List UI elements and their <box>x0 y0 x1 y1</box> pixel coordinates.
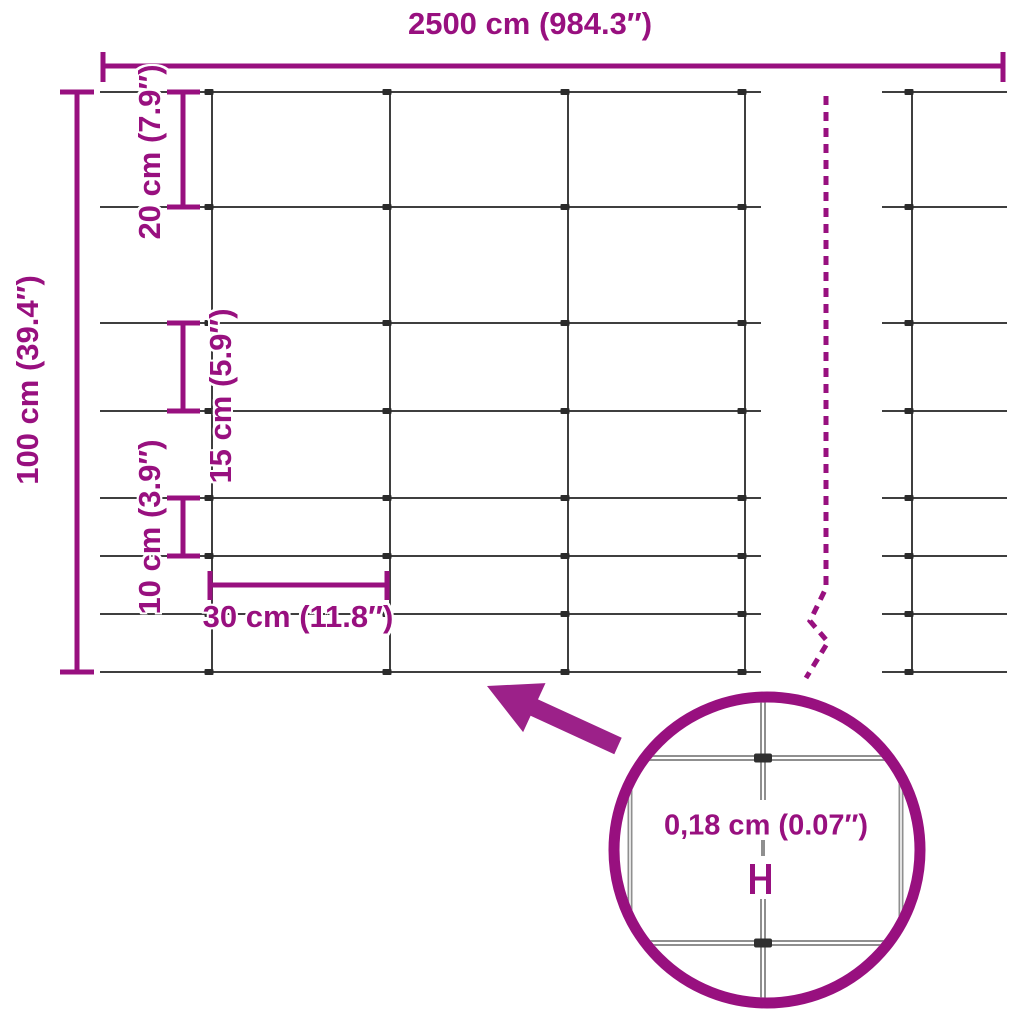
row-spacing-15cm-label: 15 cm (5.9″) <box>203 308 239 483</box>
wire-clamp-icon <box>561 89 570 95</box>
wire-clamp-icon <box>383 553 392 559</box>
column-spacing-30cm-label: 30 cm (11.8″) <box>203 599 394 635</box>
wire-clamp-icon <box>905 669 914 675</box>
wire-clamp-icon <box>738 611 747 617</box>
wire-clamp-icon <box>561 408 570 414</box>
wire-thickness-marker-icon <box>750 864 771 894</box>
wire-clamp-icon <box>738 204 747 210</box>
break-dashed-line <box>806 96 828 678</box>
wire-clamp-icon <box>205 669 214 675</box>
wire-clamp-icon <box>561 611 570 617</box>
bracket-15cm <box>167 321 200 414</box>
wire-clamp-icon <box>738 553 747 559</box>
wire-clamp-icon <box>561 320 570 326</box>
wire-clamp-icon <box>561 495 570 501</box>
wire-clamp-icon <box>561 204 570 210</box>
magnifier-ring <box>614 697 920 1003</box>
wire-clamp-icon <box>383 89 392 95</box>
bracket-10cm <box>167 496 200 559</box>
magnifier-arrow-icon <box>487 683 622 754</box>
wire-clamp-icon <box>905 89 914 95</box>
magnifier-circle <box>608 697 926 1005</box>
wire-clamp-icon <box>205 89 214 95</box>
wire-clamp-icon <box>905 495 914 501</box>
wire-clamp-icon <box>754 754 772 763</box>
wire-clamp-icon <box>383 495 392 501</box>
wire-clamp-icon <box>205 553 214 559</box>
wire-clamp-icon <box>738 669 747 675</box>
wire-clamp-icon <box>561 553 570 559</box>
width-dimension-line <box>101 52 1006 82</box>
wire-clamp-icon <box>905 553 914 559</box>
wire-clamp-icon <box>905 611 914 617</box>
wire-clamp-icon <box>383 320 392 326</box>
bracket-20cm <box>167 90 200 210</box>
wire-clamp-icon <box>383 204 392 210</box>
wire-clamp-icon <box>754 939 772 948</box>
bracket-30cm <box>208 571 390 600</box>
wire-clamp-icon <box>905 320 914 326</box>
wire-clamp-icon <box>738 89 747 95</box>
wire-thickness-label: 0,18 cm (0.07″) <box>664 810 868 843</box>
mesh-grid-right <box>882 89 1007 675</box>
wire-clamp-icon <box>905 204 914 210</box>
total-width-label: 2500 cm (984.3″) <box>408 6 652 42</box>
row-spacing-20cm-label: 20 cm (7.9″) <box>132 64 168 239</box>
wire-clamp-icon <box>738 408 747 414</box>
row-spacing-10cm-label: 10 cm (3.9″) <box>132 439 168 614</box>
wire-clamp-icon <box>905 408 914 414</box>
height-dimension-line <box>60 90 94 675</box>
wire-clamp-icon <box>738 495 747 501</box>
wire-clamp-icon <box>561 669 570 675</box>
wire-clamp-icon <box>383 669 392 675</box>
wire-clamp-icon <box>383 408 392 414</box>
total-height-label: 100 cm (39.4″) <box>10 275 46 485</box>
wire-clamp-icon <box>205 495 214 501</box>
wire-clamp-icon <box>738 320 747 326</box>
mesh-grid-main <box>100 89 761 675</box>
fence-dimension-diagram: 2500 cm (984.3″) 100 cm (39.4″) 20 cm (7… <box>0 0 1024 1024</box>
wire-clamp-icon <box>205 204 214 210</box>
